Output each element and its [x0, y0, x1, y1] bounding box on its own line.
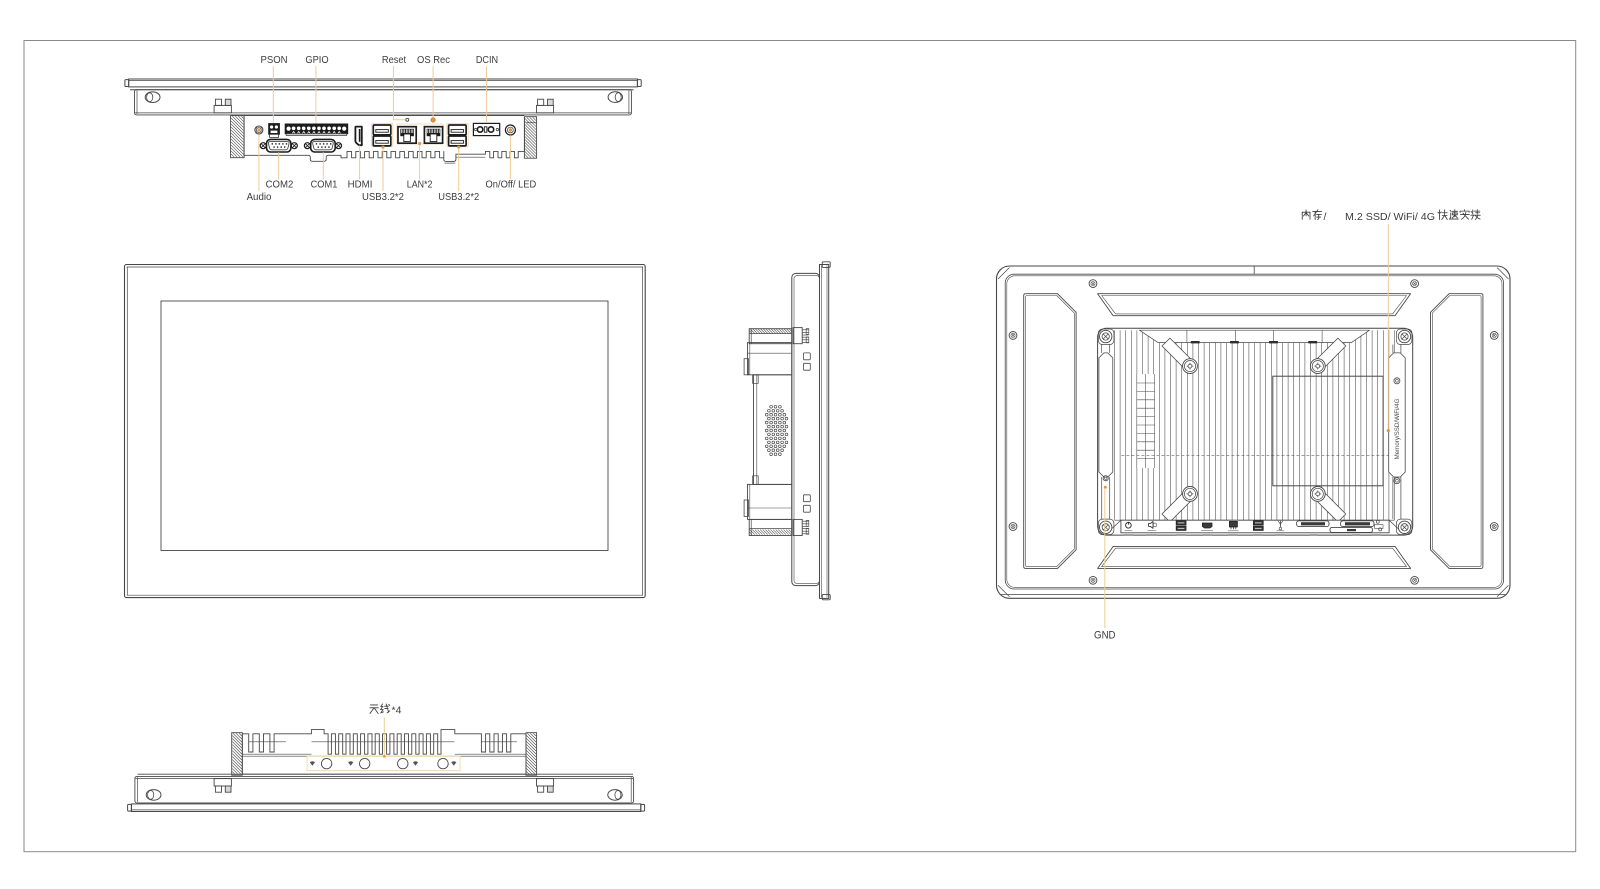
svg-text:DCIN: DCIN [476, 55, 498, 66]
svg-text:USB3.2*2: USB3.2*2 [438, 192, 479, 203]
svg-text:*4: *4 [392, 705, 402, 717]
svg-text:COM1: COM1 [311, 179, 338, 190]
svg-text:Audio: Audio [247, 192, 272, 203]
svg-text:LAN*2: LAN*2 [407, 179, 433, 190]
svg-text:GPIO: GPIO [305, 55, 328, 66]
svg-text:Reset: Reset [382, 55, 406, 66]
svg-text:/: / [1324, 211, 1327, 223]
svg-text:COM2: COM2 [266, 179, 294, 190]
svg-text:M.2 SSD/ WiFi/ 4G: M.2 SSD/ WiFi/ 4G [1345, 211, 1435, 223]
svg-text:On/Off/ LED: On/Off/ LED [486, 179, 537, 190]
svg-text:PSON: PSON [260, 55, 287, 66]
svg-text:Memory/SSD/WiFi/4G: Memory/SSD/WiFi/4G [1394, 398, 1401, 459]
svg-text:GND: GND [1094, 630, 1116, 642]
svg-text:HDMI: HDMI [348, 179, 373, 190]
svg-text:USB3.2*2: USB3.2*2 [362, 192, 404, 203]
svg-text:OS Rec: OS Rec [417, 55, 450, 66]
